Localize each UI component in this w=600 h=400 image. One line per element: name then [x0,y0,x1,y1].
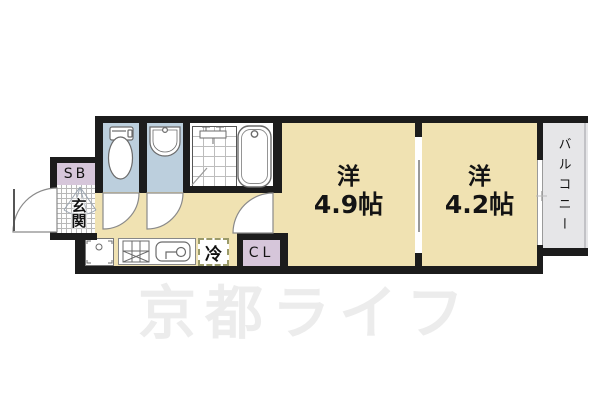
balcony-window [537,160,543,245]
refrigerator-label: 冷 [205,240,222,265]
wall-closet-right [280,233,288,266]
room-1: 洋 4.9帖 [282,152,415,232]
kitchen-counter [118,238,196,265]
wall-bottom [75,266,543,274]
closet-label: CL [243,240,280,266]
wall-right-top [537,123,543,160]
wall-entrance-left [50,157,57,240]
sliding-door [418,160,420,232]
wall-bath-south [190,186,273,193]
room-1-size: 4.9帖 [314,191,383,219]
wall-washroom-bath [183,123,190,193]
wall-room-divider-top [415,123,422,137]
shoe-box-label: SB [57,163,95,185]
refrigerator-space: 冷 [198,238,229,266]
wall-toilet-washroom [139,123,147,193]
washroom [147,123,183,192]
wall-left-wet [95,116,103,193]
bath-tiles [193,127,236,186]
balcony-railing [584,123,586,248]
wall-bath-room1 [273,116,282,193]
room-2-size: 4.2帖 [445,191,514,219]
toilet-room [103,123,139,192]
room-2-name: 洋 [468,165,491,191]
wall-balcony-bottom [537,248,588,256]
wall-room-divider-bottom [415,253,422,266]
floor-plan: 京都ライフ SB 玄関 洋 4.9帖 洋 4.2帖 バルコニー CL 冷 [0,0,600,400]
watermark-text: 京都ライフ [138,266,473,350]
room-2: 洋 4.2帖 [422,152,537,232]
balcony-label: バルコニー [552,127,574,247]
washing-machine-pan [85,238,114,266]
entrance-label: 玄関 [68,192,90,234]
wall-top [95,116,588,123]
wall-entrance-bottom [50,233,97,240]
room-1-name: 洋 [337,165,360,191]
